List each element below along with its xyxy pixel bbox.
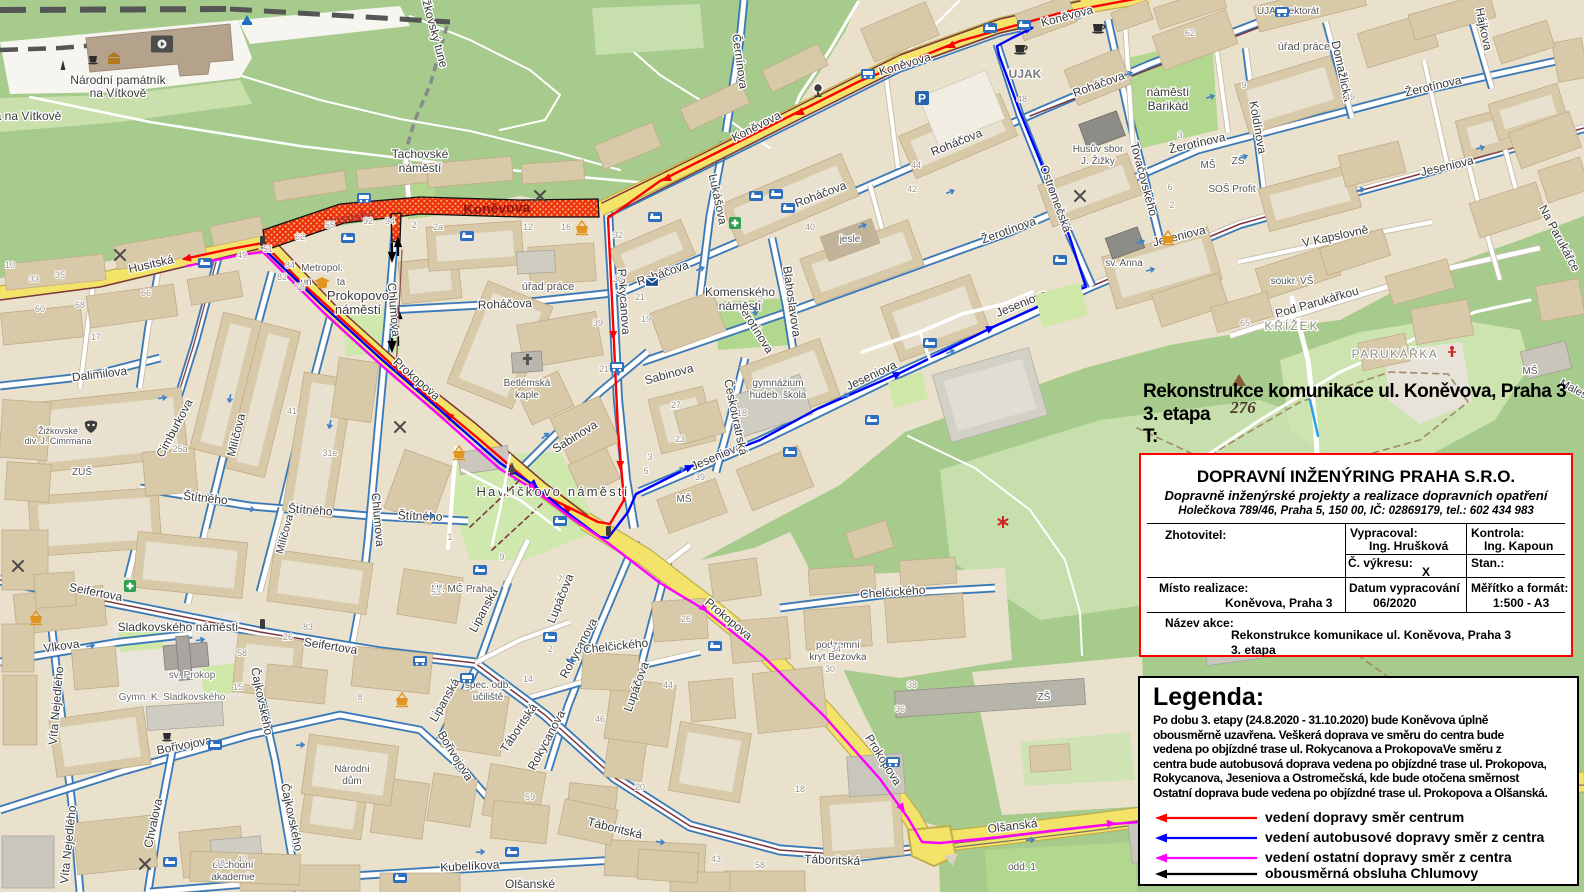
svg-text:SOŠ Profit: SOŠ Profit xyxy=(1208,182,1255,195)
svg-text:31e: 31e xyxy=(322,448,337,458)
svg-text:34: 34 xyxy=(831,644,841,654)
svg-text:9: 9 xyxy=(1241,80,1246,90)
svg-text:44: 44 xyxy=(663,680,673,690)
svg-text:Koněvova: Koněvova xyxy=(463,199,531,217)
svg-text:náměstí: náměstí xyxy=(335,302,382,317)
svg-text:38: 38 xyxy=(215,858,225,868)
svg-text:42: 42 xyxy=(907,184,917,194)
svg-text:78: 78 xyxy=(295,282,305,292)
svg-text:2: 2 xyxy=(411,220,416,230)
svg-text:14: 14 xyxy=(523,674,533,684)
svg-text:59: 59 xyxy=(525,792,535,802)
svg-text:Štítného: Štítného xyxy=(398,507,444,524)
svg-text:27: 27 xyxy=(671,400,681,410)
svg-text:55: 55 xyxy=(325,220,335,230)
svg-text:ta: ta xyxy=(337,277,346,288)
svg-text:PARUKÁŘKA: PARUKÁŘKA xyxy=(1352,346,1439,361)
svg-text:60: 60 xyxy=(35,304,45,314)
svg-text:39: 39 xyxy=(695,472,705,482)
svg-text:dům: dům xyxy=(342,775,361,787)
svg-text:26: 26 xyxy=(283,632,293,642)
svg-text:náměstí: náměstí xyxy=(399,161,442,175)
svg-text:Gymn. K. Sladkovského: Gymn. K. Sladkovského xyxy=(119,692,226,703)
svg-text:84: 84 xyxy=(285,260,295,270)
svg-text:Barikád: Barikád xyxy=(1148,99,1189,113)
svg-text:KŘÍŽEK: KŘÍŽEK xyxy=(1264,318,1319,333)
svg-text:gymnázium: gymnázium xyxy=(752,378,803,389)
svg-text:62: 62 xyxy=(1185,28,1195,38)
svg-text:náměstí: náměstí xyxy=(1147,85,1190,99)
svg-text:MŠ: MŠ xyxy=(1201,158,1216,171)
svg-text:41: 41 xyxy=(287,406,297,416)
svg-text:65: 65 xyxy=(1240,318,1250,328)
svg-text:Komenského: Komenského xyxy=(705,285,775,299)
svg-text:6: 6 xyxy=(1167,182,1172,192)
svg-text:úřad práce: úřad práce xyxy=(522,281,575,293)
svg-text:53: 53 xyxy=(431,587,441,597)
svg-text:48: 48 xyxy=(1017,94,1027,104)
svg-text:úřad práce: úřad práce xyxy=(1278,41,1331,53)
svg-text:23: 23 xyxy=(675,434,685,444)
svg-text:odd. 1: odd. 1 xyxy=(1008,862,1036,873)
svg-text:94: 94 xyxy=(385,216,395,226)
svg-text:na Vítkově: na Vítkově xyxy=(90,86,147,100)
svg-text:58: 58 xyxy=(237,648,247,658)
svg-text:2a: 2a xyxy=(433,222,443,232)
svg-text:akademie: akademie xyxy=(211,872,255,883)
svg-text:soukr. VŠ: soukr. VŠ xyxy=(1271,274,1314,287)
svg-text:38: 38 xyxy=(907,680,917,690)
svg-text:Betlémská: Betlémská xyxy=(504,378,551,389)
svg-text:3: 3 xyxy=(1177,130,1182,140)
svg-text:19: 19 xyxy=(641,314,651,324)
svg-text:5: 5 xyxy=(643,466,648,476)
svg-text:51: 51 xyxy=(263,244,273,254)
svg-text:62: 62 xyxy=(295,232,305,242)
svg-text:Štítného: Štítného xyxy=(287,500,333,518)
svg-text:Tachovské: Tachovské xyxy=(392,147,449,161)
svg-text:21: 21 xyxy=(635,292,645,302)
svg-text:učiliště: učiliště xyxy=(473,692,504,703)
svg-text:43: 43 xyxy=(711,854,721,864)
svg-text:20: 20 xyxy=(635,782,645,792)
svg-text:MŠ: MŠ xyxy=(1523,364,1538,377)
svg-text:26: 26 xyxy=(681,614,691,624)
svg-text:Olšanské: Olšanské xyxy=(505,877,555,891)
svg-text:Sladkovského náměstí: Sladkovského náměstí xyxy=(118,620,239,634)
svg-text:ZŠ: ZŠ xyxy=(1038,690,1051,703)
svg-text:21: 21 xyxy=(599,364,609,374)
svg-text:Prokopovo: Prokopovo xyxy=(327,288,389,303)
svg-text:UJAK: UJAK xyxy=(1009,67,1042,81)
svg-text:49: 49 xyxy=(1345,92,1355,102)
svg-text:25a: 25a xyxy=(172,444,187,454)
svg-text:Roháčova: Roháčova xyxy=(478,296,533,312)
svg-text:sv. Prokop: sv. Prokop xyxy=(169,670,216,681)
svg-text:a na Vítkově: a na Vítkově xyxy=(0,109,62,123)
svg-text:div. J. Cimrmana: div. J. Cimrmana xyxy=(25,436,92,446)
svg-text:17: 17 xyxy=(91,332,101,342)
svg-text:82: 82 xyxy=(277,272,287,282)
svg-text:35: 35 xyxy=(55,270,65,280)
svg-text:2: 2 xyxy=(757,294,762,304)
svg-text:7: 7 xyxy=(557,574,562,584)
svg-text:39: 39 xyxy=(593,318,603,328)
svg-text:MŠ: MŠ xyxy=(677,492,692,505)
svg-text:58: 58 xyxy=(755,860,765,870)
svg-text:12: 12 xyxy=(523,222,533,232)
svg-text:Žižkovské: Žižkovské xyxy=(38,426,78,436)
svg-text:9: 9 xyxy=(499,552,504,562)
svg-text:3: 3 xyxy=(647,452,652,462)
svg-text:18: 18 xyxy=(737,408,747,418)
svg-text:Metropol.: Metropol. xyxy=(301,263,343,274)
svg-text:2: 2 xyxy=(547,644,552,654)
svg-text:49: 49 xyxy=(237,250,247,260)
svg-text:P: P xyxy=(918,92,926,106)
svg-text:8: 8 xyxy=(357,692,362,702)
svg-text:44: 44 xyxy=(911,160,921,170)
svg-text:hudeb. škola: hudeb. škola xyxy=(750,390,807,401)
svg-text:40: 40 xyxy=(805,222,815,232)
svg-text:46: 46 xyxy=(595,714,605,724)
svg-text:83: 83 xyxy=(303,622,313,632)
svg-text:15: 15 xyxy=(233,682,243,692)
svg-text:10: 10 xyxy=(5,260,15,270)
svg-text:Husův sbor: Husův sbor xyxy=(1073,143,1124,155)
svg-text:33: 33 xyxy=(29,274,39,284)
svg-text:32: 32 xyxy=(613,230,623,240)
svg-text:ZŠ: ZŠ xyxy=(1232,154,1245,167)
svg-text:18: 18 xyxy=(795,784,805,794)
svg-text:kaple: kaple xyxy=(515,390,539,401)
svg-text:68: 68 xyxy=(75,300,85,310)
svg-text:Táboritská: Táboritská xyxy=(804,852,861,868)
svg-text:ZUŠ: ZUŠ xyxy=(72,465,92,478)
svg-text:36: 36 xyxy=(895,704,905,714)
svg-text:16: 16 xyxy=(561,222,571,232)
svg-text:40: 40 xyxy=(237,854,247,864)
svg-text:Národní: Národní xyxy=(334,764,370,775)
svg-text:jesle: jesle xyxy=(839,234,861,245)
svg-text:30: 30 xyxy=(613,274,623,284)
svg-text:Národní památník: Národní památník xyxy=(70,73,166,87)
svg-text:Havlíčkovo náměstí: Havlíčkovo náměstí xyxy=(476,484,629,499)
svg-text:J. Žižky: J. Žižky xyxy=(1081,154,1115,167)
svg-text:92: 92 xyxy=(363,216,373,226)
svg-text:1: 1 xyxy=(447,532,452,542)
svg-text:sv. Anna: sv. Anna xyxy=(1105,258,1143,269)
svg-text:66: 66 xyxy=(141,288,151,298)
svg-text:30: 30 xyxy=(825,664,835,674)
svg-text:2: 2 xyxy=(1169,200,1174,210)
